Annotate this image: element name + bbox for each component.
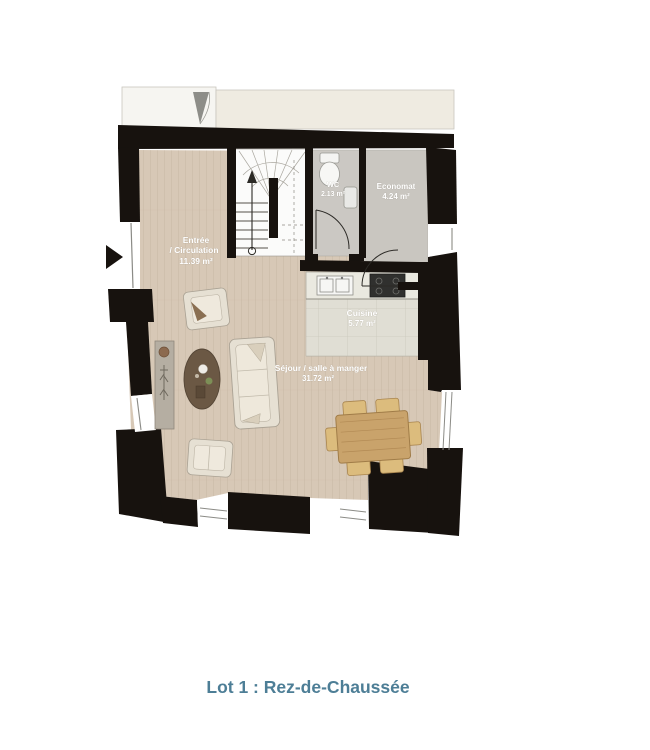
window-bottom-b [337, 500, 368, 529]
label-entree-line2: / Circulation [169, 245, 218, 255]
wall-bottom-a [160, 496, 198, 527]
label-cuisine-name: Cuisine [347, 308, 378, 318]
wall-bottom-right-corner [427, 448, 463, 536]
label-wc-area: 2.13 m² [321, 191, 346, 198]
stair-stub-wall [269, 178, 278, 238]
adjoining-area [122, 87, 454, 129]
wall-right-upper [426, 147, 457, 224]
label-sejour-area: 31.72 m² [302, 374, 334, 383]
plate-decor [199, 365, 208, 374]
label-entree-area: 11.39 m² [179, 256, 213, 266]
wall-wc-right [359, 148, 366, 258]
label-entree-line1: Entrée [183, 235, 210, 245]
window-right-upper [428, 224, 457, 257]
wall-economat-bottom [398, 282, 428, 290]
floor-plan-page: Entrée / Circulation 11.39 m² WC 2.13 m²… [0, 0, 650, 750]
wall-bottom-b [228, 492, 310, 534]
staircase [234, 149, 308, 256]
label-wc-name: WC [327, 180, 340, 189]
label-sejour-name: Séjour / salle à manger [275, 363, 368, 373]
floor-plan-drawing: Entrée / Circulation 11.39 m² WC 2.13 m²… [0, 0, 650, 750]
book-decor [196, 386, 205, 398]
window-bottom-a [197, 500, 228, 528]
wall-stair-left [227, 148, 236, 258]
label-economat-name: Economat [377, 182, 416, 191]
window-right-lower [443, 392, 452, 450]
plan-caption: Lot 1 : Rez-de-Chaussée [206, 677, 409, 697]
wall-left-block [108, 289, 154, 322]
dining-table [336, 410, 411, 463]
adjoining-room-right [216, 90, 454, 129]
coffee-table [184, 349, 220, 409]
wall-wc-left [305, 148, 313, 258]
wall-left-upper [118, 147, 140, 222]
sofa-long [229, 337, 280, 430]
label-cuisine-area: 5.77 m² [348, 319, 376, 328]
toilet-tank [320, 153, 339, 163]
loveseat-bottom [187, 439, 233, 478]
wall-wc-bottom-a [305, 254, 318, 261]
wall-kitchen-top [300, 260, 420, 273]
wall-right-mid [428, 252, 461, 392]
armchair-top [183, 287, 230, 330]
console-table [155, 341, 174, 429]
wall-kitchen-right [418, 262, 430, 360]
wc-sink [344, 187, 357, 208]
plant-decor [206, 378, 213, 385]
wall-wc-bottom-b [349, 254, 364, 261]
entrance-arrow-icon [106, 245, 123, 269]
plant-pot [159, 347, 169, 357]
label-economat-area: 4.24 m² [382, 192, 410, 201]
kitchen-sink [317, 276, 353, 295]
window-left-lower [131, 394, 156, 432]
